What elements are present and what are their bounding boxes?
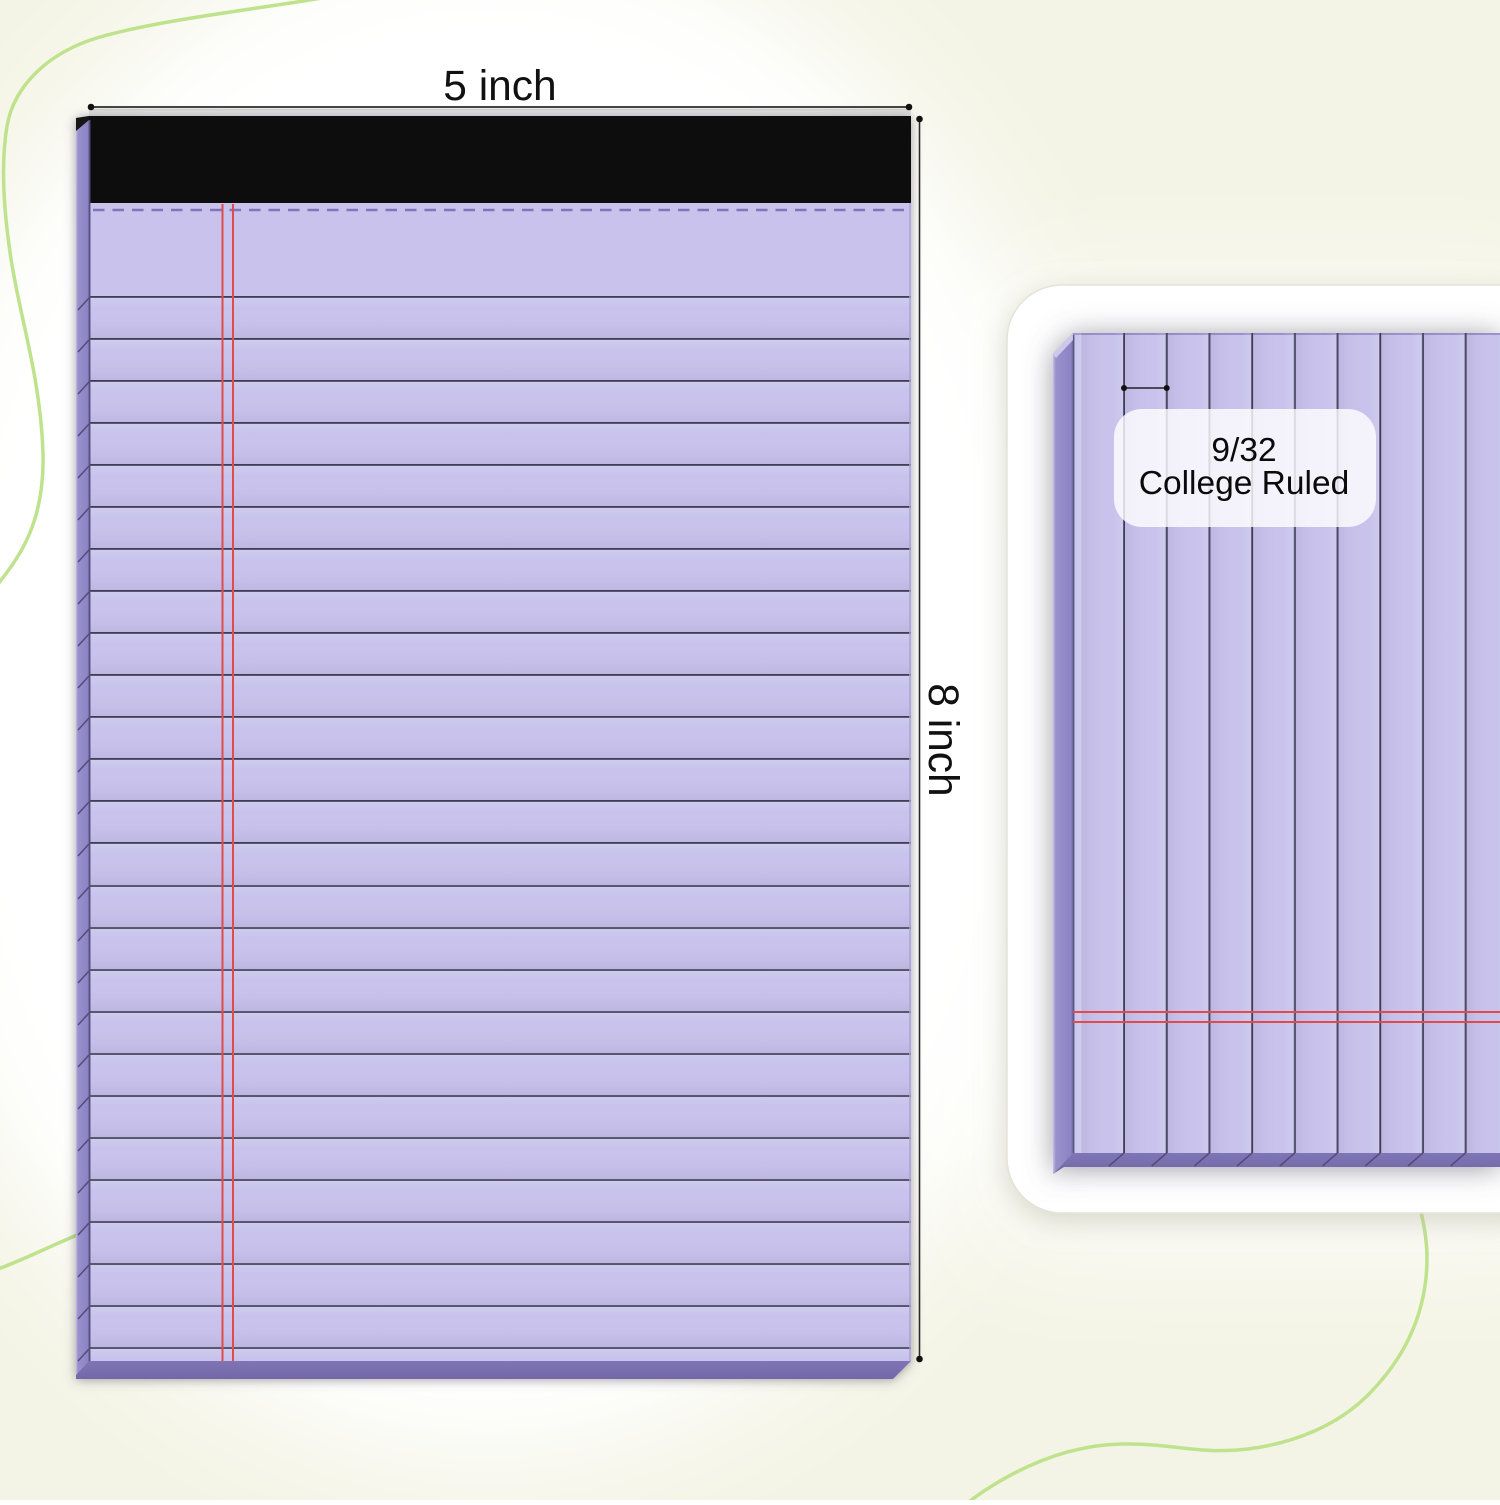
svg-text:8 inch: 8 inch	[919, 683, 966, 796]
svg-text:5 inch: 5 inch	[443, 63, 556, 110]
svg-text:College Ruled: College Ruled	[1139, 465, 1349, 502]
svg-text:9/32: 9/32	[1211, 432, 1276, 469]
